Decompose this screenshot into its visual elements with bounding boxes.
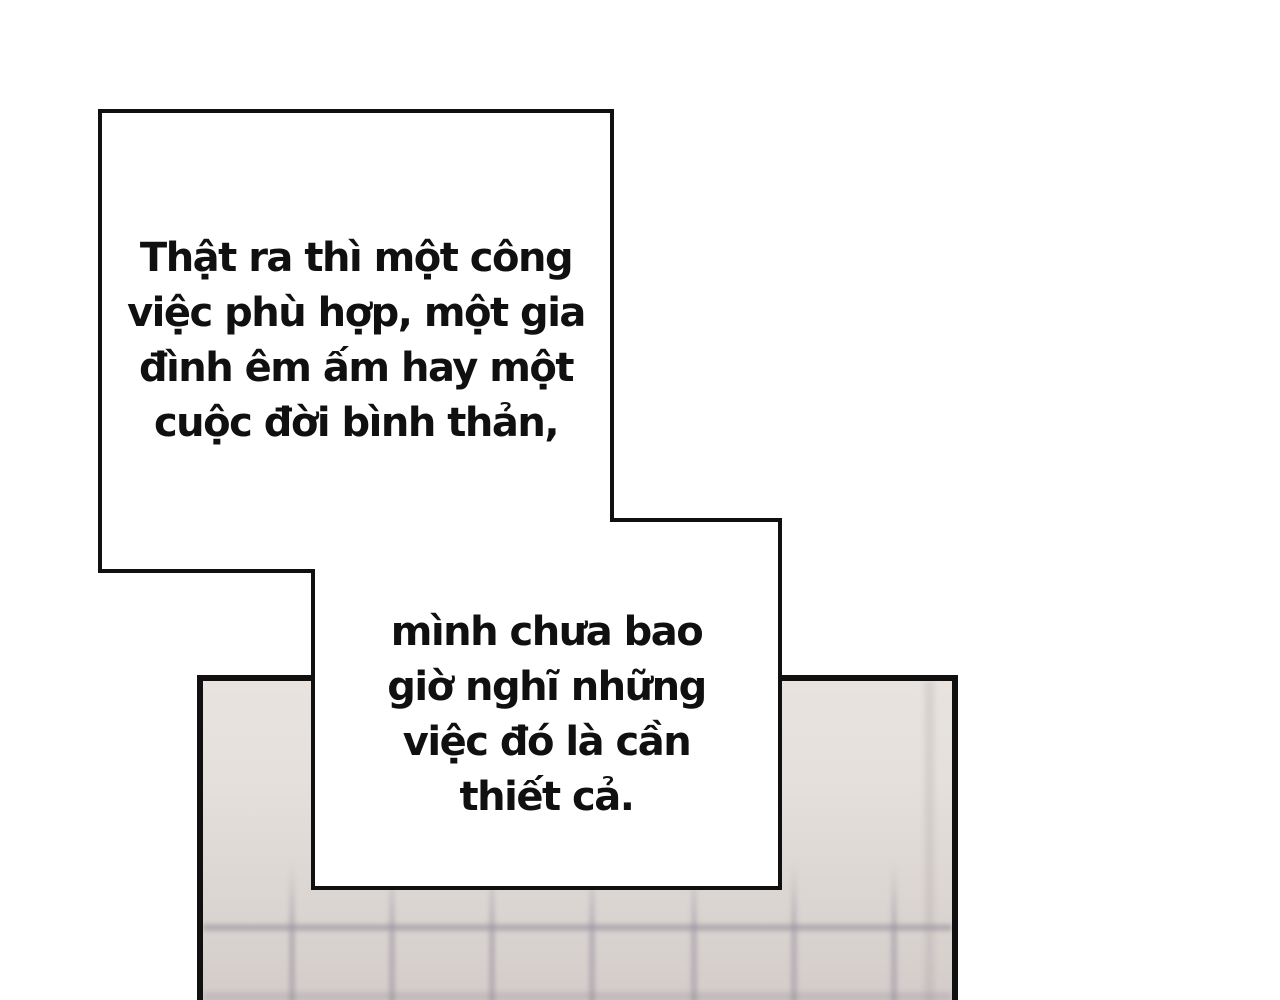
speech2-line1: mình chưa bao	[391, 605, 702, 660]
speech1-line4: cuộc đời bình thản,	[154, 396, 558, 451]
speech2-line2: giờ nghĩ những	[387, 660, 706, 715]
speech1-line1: Thật ra thì một công	[140, 231, 572, 286]
speech-bubble-1: Thật ra thì một công việc phù hợp, một g…	[104, 115, 608, 567]
speech1-line3: đình êm ấm hay một	[139, 341, 573, 396]
speech2-line3: việc đó là cần	[403, 715, 690, 770]
speech1-line2: việc phù hợp, một gia	[127, 286, 585, 341]
speech-bubble-2: mình chưa bao giờ nghĩ những việc đó là …	[317, 524, 776, 884]
speech2-line4: thiết cả.	[460, 770, 634, 825]
comic-page: Thật ra thì một công việc phù hợp, một g…	[0, 0, 1280, 1000]
